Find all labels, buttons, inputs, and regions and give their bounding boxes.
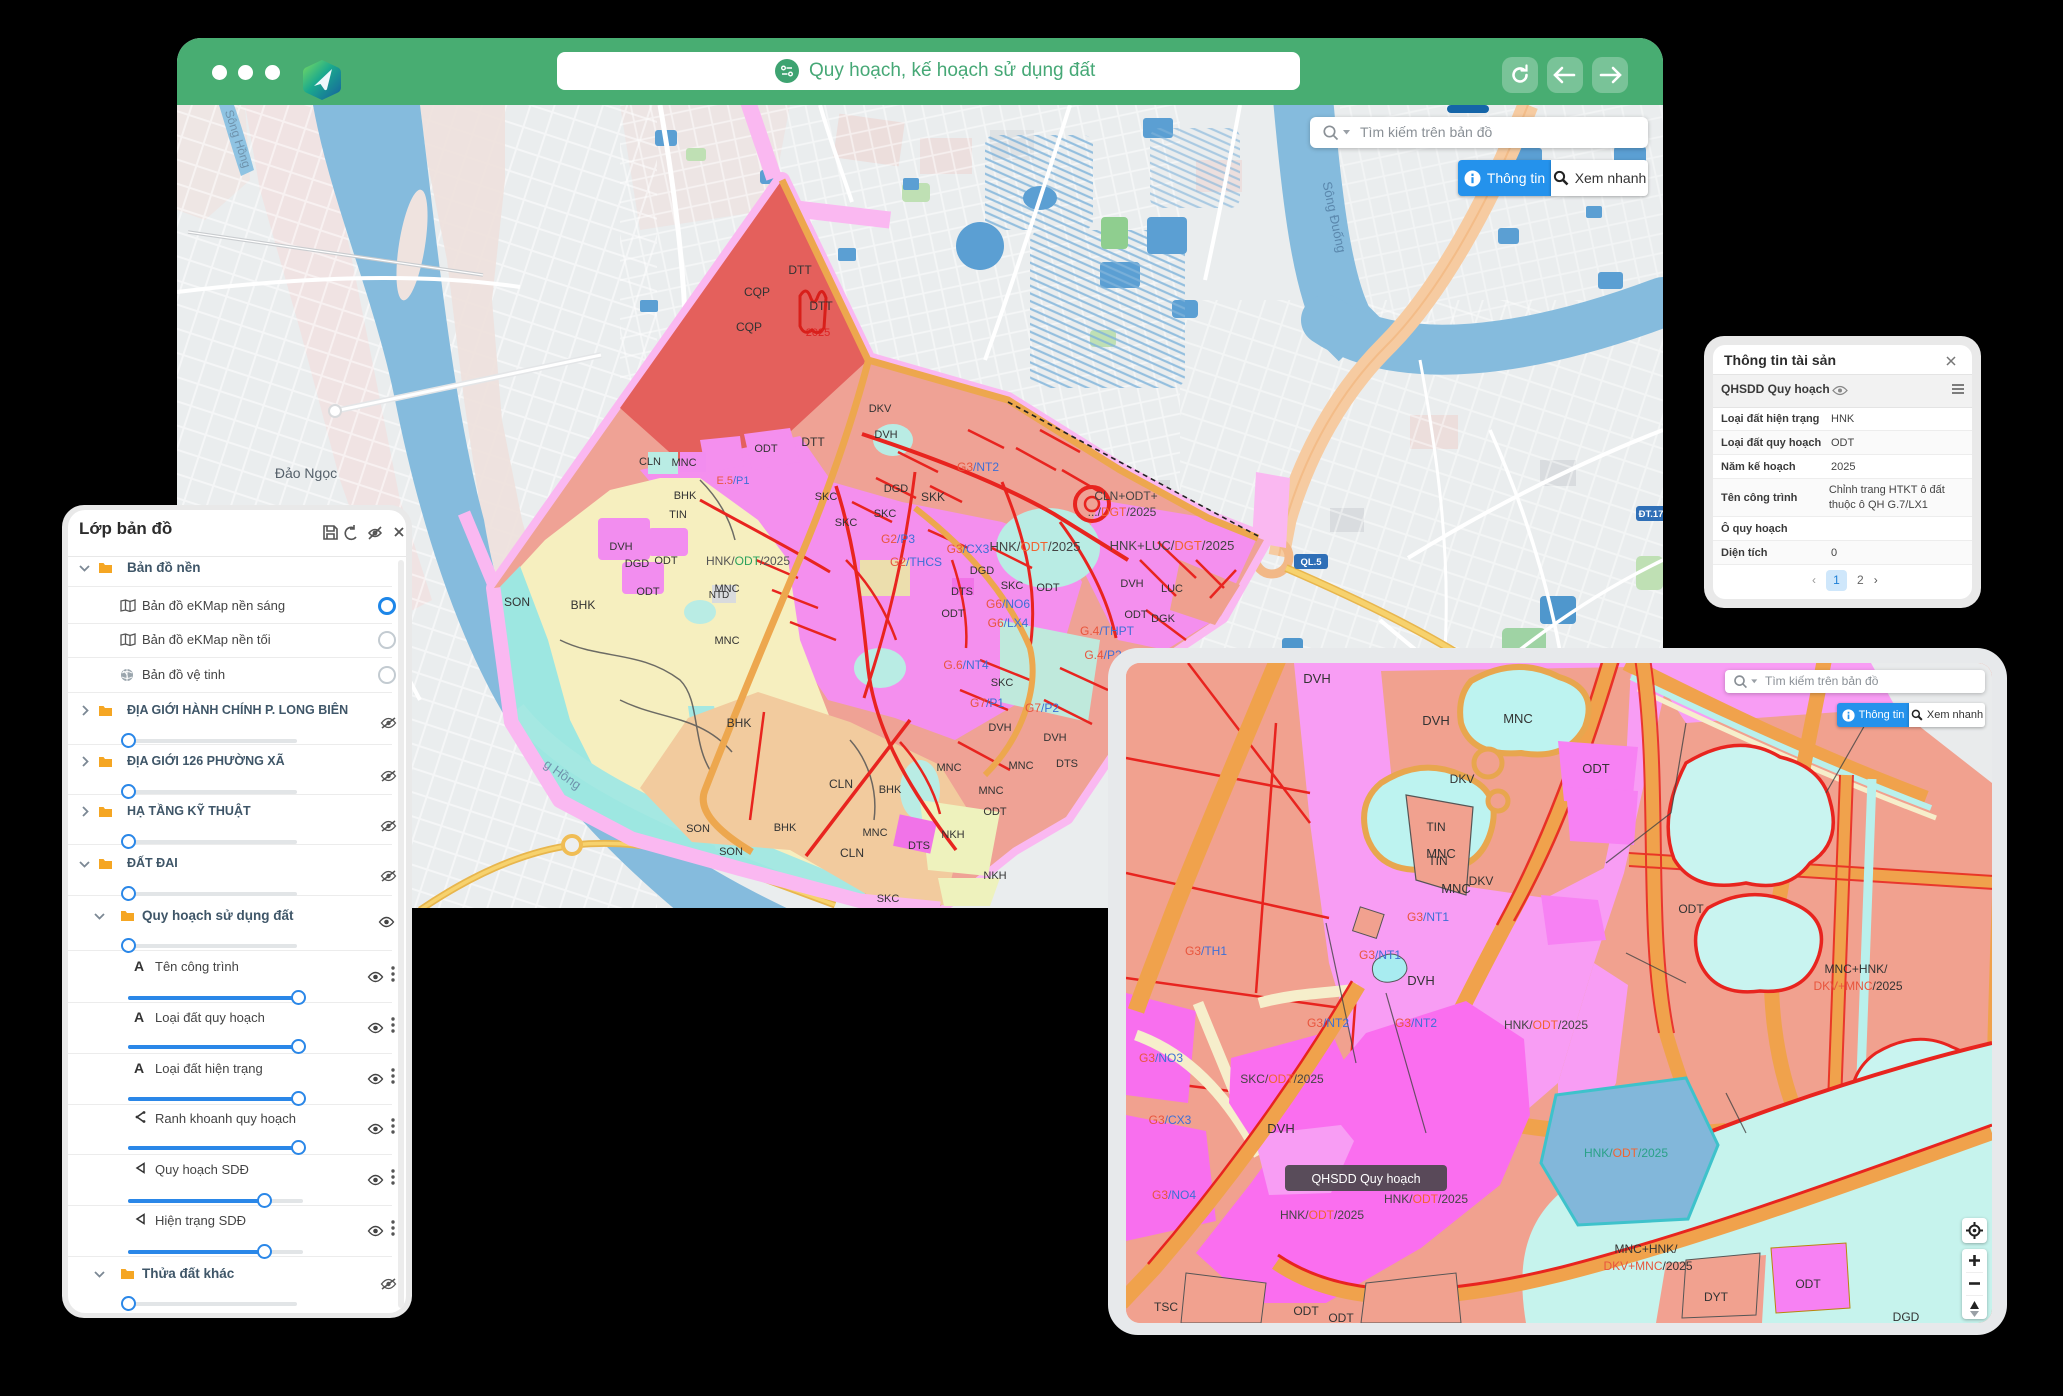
- svg-text:NKH: NKH: [983, 870, 1006, 882]
- svg-text:G3/CX3: G3/CX3: [947, 542, 990, 556]
- svg-text:E.5/P1: E.5/P1: [716, 475, 749, 487]
- svg-text:DTS: DTS: [951, 586, 973, 598]
- svg-text:NKH: NKH: [941, 829, 964, 841]
- svg-text:MNC: MNC: [978, 785, 1003, 797]
- svg-text:CLN: CLN: [840, 846, 864, 860]
- svg-text:CLN: CLN: [829, 777, 853, 791]
- svg-text:SKC: SKC: [1001, 580, 1024, 592]
- svg-text:SON: SON: [719, 846, 743, 858]
- svg-text:DKV: DKV: [1469, 874, 1494, 888]
- svg-text:TIN: TIN: [669, 509, 687, 521]
- svg-text:ODT: ODT: [1124, 609, 1148, 621]
- svg-text:TIN: TIN: [1426, 820, 1445, 834]
- svg-text:NTD: NTD: [709, 590, 730, 601]
- svg-text:LUC: LUC: [1161, 583, 1183, 595]
- svg-text:G6/LX4: G6/LX4: [988, 616, 1029, 630]
- svg-text:DGK: DGK: [1151, 613, 1176, 625]
- svg-text:CLN: CLN: [639, 456, 661, 468]
- svg-text:.../DGT/2025: .../DGT/2025: [1088, 505, 1157, 519]
- svg-text:MNC+HNK/: MNC+HNK/: [1824, 962, 1888, 976]
- svg-text:G3/NT1: G3/NT1: [1407, 910, 1449, 924]
- svg-text:DTT: DTT: [809, 299, 833, 313]
- svg-text:DYT: DYT: [1704, 1290, 1729, 1304]
- svg-text:DTT: DTT: [788, 263, 812, 277]
- svg-text:ODT: ODT: [654, 555, 678, 567]
- svg-text:G7/P1: G7/P1: [970, 696, 1004, 710]
- svg-text:DVH: DVH: [1267, 1121, 1294, 1136]
- svg-text:G3/NT2: G3/NT2: [957, 460, 999, 474]
- svg-text:DVH: DVH: [1043, 732, 1066, 744]
- svg-text:CQP: CQP: [736, 320, 762, 334]
- svg-text:SON: SON: [686, 823, 710, 835]
- svg-text:DKV+MNC/2025: DKV+MNC/2025: [1813, 979, 1902, 993]
- svg-text:DVH: DVH: [988, 722, 1011, 734]
- svg-text:ODT: ODT: [1293, 1304, 1319, 1318]
- svg-text:MNC: MNC: [1503, 711, 1533, 726]
- svg-text:MNC: MNC: [671, 457, 696, 469]
- svg-text:DGD: DGD: [884, 483, 909, 495]
- svg-text:TSC: TSC: [1154, 1300, 1178, 1314]
- svg-text:ODT: ODT: [1795, 1277, 1821, 1291]
- svg-text:MNC: MNC: [1008, 760, 1033, 772]
- svg-text:MNC: MNC: [936, 762, 961, 774]
- svg-text:G2/P3: G2/P3: [881, 532, 915, 546]
- svg-text:SKC: SKC: [991, 677, 1014, 689]
- svg-text:DKV+MNC/2025: DKV+MNC/2025: [1603, 1259, 1692, 1273]
- svg-text:SON: SON: [504, 595, 530, 609]
- svg-text:ODT: ODT: [1328, 1311, 1354, 1323]
- svg-text:G.4/THPT: G.4/THPT: [1080, 624, 1135, 638]
- svg-text:DTS: DTS: [1056, 758, 1078, 770]
- svg-text:ODT: ODT: [754, 443, 778, 455]
- svg-text:G7/P2: G7/P2: [1025, 701, 1059, 715]
- svg-text:ODT: ODT: [636, 586, 660, 598]
- svg-text:DVH: DVH: [1422, 713, 1449, 728]
- svg-text:G3/NO4: G3/NO4: [1152, 1188, 1196, 1202]
- svg-text:DVH: DVH: [1407, 973, 1434, 988]
- svg-text:QHSDD Quy hoạch: QHSDD Quy hoạch: [1311, 1172, 1420, 1186]
- svg-text:MNC+HNK/: MNC+HNK/: [1614, 1242, 1678, 1256]
- svg-text:DTT: DTT: [801, 435, 825, 449]
- svg-text:DVH: DVH: [874, 429, 897, 441]
- svg-text:HNK/ODT/2025: HNK/ODT/2025: [1384, 1192, 1468, 1206]
- svg-text:SKC: SKC: [835, 517, 858, 529]
- svg-text:DVH: DVH: [1120, 578, 1143, 590]
- svg-text:DGD: DGD: [625, 558, 650, 570]
- svg-text:SKK: SKK: [921, 490, 945, 504]
- svg-text:TIN: TIN: [1428, 854, 1447, 868]
- svg-text:DKV: DKV: [1450, 772, 1475, 786]
- svg-text:HNK/ODT/2025: HNK/ODT/2025: [706, 554, 790, 568]
- svg-text:CQP: CQP: [744, 285, 770, 299]
- svg-text:MNC: MNC: [862, 827, 887, 839]
- svg-text:BHK: BHK: [727, 716, 752, 730]
- svg-text:HNK/ODT/2025: HNK/ODT/2025: [1280, 1208, 1364, 1222]
- svg-text:ĐT.17: ĐT.17: [1639, 509, 1663, 520]
- svg-text:DGD: DGD: [1893, 1310, 1920, 1323]
- svg-text:G3/NT1: G3/NT1: [1359, 948, 1401, 962]
- svg-text:HNK+LUC/DGT/2025: HNK+LUC/DGT/2025: [1110, 538, 1235, 553]
- svg-text:ODT: ODT: [1678, 902, 1704, 916]
- svg-text:DGD: DGD: [970, 565, 995, 577]
- svg-text:ODT: ODT: [1582, 761, 1610, 776]
- svg-text:BHK: BHK: [674, 490, 697, 502]
- svg-text:G3/TH1: G3/TH1: [1185, 944, 1227, 958]
- svg-text:2025: 2025: [806, 327, 830, 339]
- svg-text:G.6/NT4: G.6/NT4: [943, 658, 989, 672]
- svg-text:G3/NO3: G3/NO3: [1139, 1051, 1183, 1065]
- svg-text:G3/NT2: G3/NT2: [1395, 1016, 1437, 1030]
- svg-text:SKC/ODT/2025: SKC/ODT/2025: [1240, 1072, 1324, 1086]
- svg-text:SKC: SKC: [877, 893, 900, 905]
- svg-text:BHK: BHK: [774, 822, 797, 834]
- svg-text:ODT: ODT: [1036, 582, 1060, 594]
- svg-text:DVH: DVH: [609, 541, 632, 553]
- svg-text:SKC: SKC: [815, 491, 838, 503]
- svg-text:Đảo Ngọc: Đảo Ngọc: [275, 465, 337, 481]
- svg-text:HNK/ODT/2025: HNK/ODT/2025: [1584, 1146, 1668, 1160]
- svg-text:MNC: MNC: [714, 635, 739, 647]
- svg-text:DKV: DKV: [869, 403, 892, 415]
- svg-text:QL.5: QL.5: [1300, 557, 1322, 568]
- svg-text:G3/CX3: G3/CX3: [1149, 1113, 1192, 1127]
- svg-text:MNC: MNC: [1441, 881, 1471, 896]
- svg-text:G3/NT2: G3/NT2: [1307, 1016, 1349, 1030]
- svg-text:BHK: BHK: [879, 784, 902, 796]
- svg-text:HNK/ODT/2025: HNK/ODT/2025: [989, 539, 1080, 554]
- svg-text:G6/NO6: G6/NO6: [986, 597, 1030, 611]
- svg-text:DTS: DTS: [908, 840, 930, 852]
- svg-text:BHK: BHK: [571, 598, 596, 612]
- svg-text:DVH: DVH: [1303, 671, 1330, 686]
- svg-text:ODT: ODT: [983, 806, 1007, 818]
- svg-text:ODT: ODT: [941, 608, 965, 620]
- svg-text:G2/THCS: G2/THCS: [890, 555, 942, 569]
- svg-text:HNK/ODT/2025: HNK/ODT/2025: [1504, 1018, 1588, 1032]
- svg-text:SKC: SKC: [874, 508, 897, 520]
- svg-text:CLN+ODT+: CLN+ODT+: [1094, 489, 1157, 503]
